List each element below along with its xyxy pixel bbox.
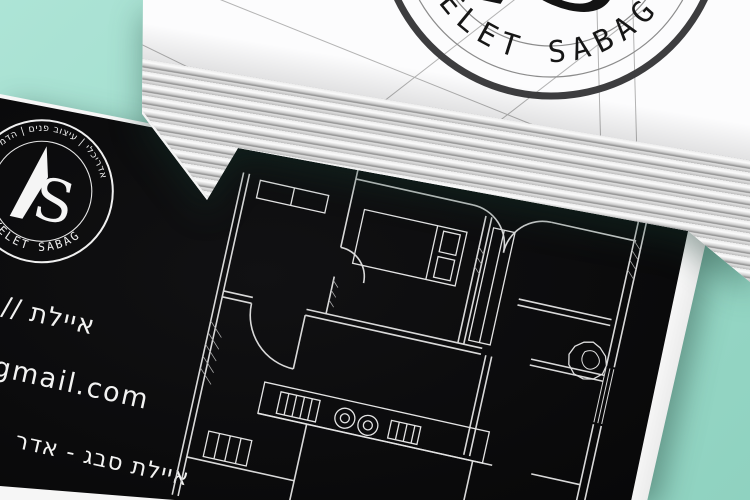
white-business-card-stack: AYELET SABAG S: [0, 0, 750, 500]
white-card-top-face: AYELET SABAG S: [0, 0, 750, 500]
business-card-mockup-photo: אדריכלי | עיצוב פנים | הדמיות AYELET SAB…: [0, 0, 750, 500]
